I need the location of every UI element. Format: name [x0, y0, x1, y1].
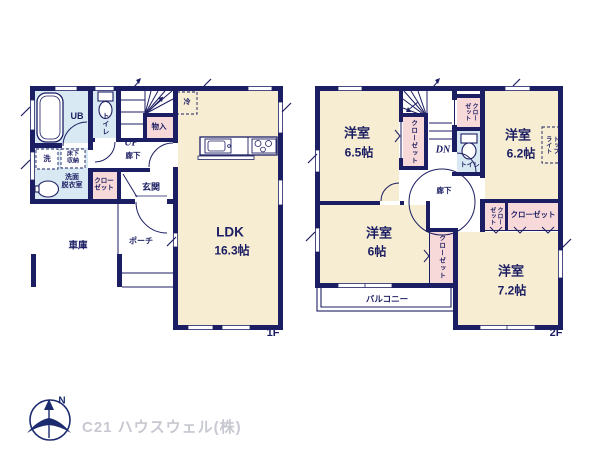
label-floor-1f: 1F [267, 327, 280, 339]
label-porch: ポーチ [129, 238, 153, 247]
floor-2f-structure [306, 78, 571, 330]
label-room62: 洋室 [505, 129, 531, 144]
floorplan-canvas: UB トイレ 物入 UP 廊下 冷 洗 床下 収納 洗面 脱衣室 クロー ゼット… [0, 0, 600, 450]
label-ldk-size: 16.3帖 [214, 244, 249, 257]
label-washroom: 洗面 脱衣室 [62, 174, 83, 190]
label-closet-1f: クロー ゼット [94, 178, 114, 193]
label-room72: 洋室 [498, 265, 524, 280]
label-toilet-1f: トイレ [101, 112, 109, 136]
label-room6: 洋室 [366, 227, 392, 242]
floor-1f-structure [21, 78, 291, 330]
label-entrance: 玄関 [142, 182, 160, 192]
label-balcony: バルコニー [366, 295, 408, 305]
label-closet-b: クロー ゼット [463, 103, 478, 121]
label-room72-size: 7.2帖 [498, 284, 527, 297]
label-washer: 洗 [43, 155, 51, 163]
room-ldk [178, 91, 278, 325]
bathtub [37, 93, 63, 142]
entrance-door-leaf [123, 174, 137, 197]
label-room65-size: 6.5帖 [345, 146, 374, 159]
label-hallway-1f: 廊下 [126, 152, 141, 160]
label-garage: 車庫 [68, 242, 87, 253]
floorplan-drawing [0, 0, 600, 450]
label-monoire: 物入 [152, 123, 167, 131]
label-room6-size: 6帖 [368, 245, 387, 258]
company-name: C21 ハウスウェル(株) [82, 416, 242, 437]
label-ldk: LDK [216, 224, 244, 239]
label-floor-2f: 2F [550, 327, 563, 339]
label-toilet-2f: トイレ [460, 161, 480, 168]
label-closet-d: クローゼット [511, 211, 556, 219]
label-hallway-2f: 廊下 [437, 187, 452, 195]
label-ub: UB [71, 111, 84, 121]
label-underfloor: 床下 収納 [67, 151, 79, 164]
label-dn: DN [436, 144, 450, 155]
toilet-fixture-2f [461, 134, 477, 159]
label-up: UP [124, 137, 137, 148]
label-room62-size: 6.2帖 [507, 147, 536, 160]
label-closet-e: クローゼット [437, 235, 444, 280]
compass-north-label: N [58, 395, 65, 406]
label-room65: 洋室 [344, 127, 370, 142]
label-closet-c: クロー ゼット [488, 207, 503, 225]
label-closet-a: クローゼット [409, 120, 416, 165]
label-fridge: 冷 [184, 99, 191, 107]
label-toplight: トップ ライト [544, 136, 559, 154]
